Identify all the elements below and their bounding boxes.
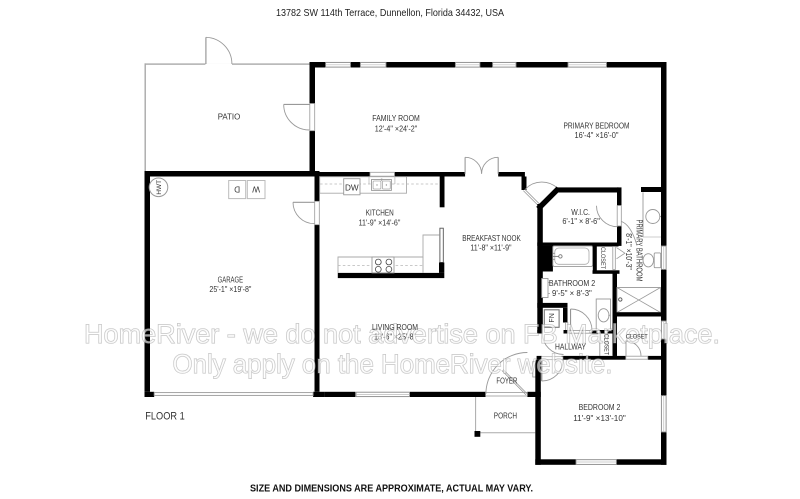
svg-text:25'-1" ×19'-8": 25'-1" ×19'-8": [209, 284, 251, 294]
svg-text:BATHROOM 2: BATHROOM 2: [549, 278, 595, 288]
svg-text:BEDROOM 2: BEDROOM 2: [579, 402, 621, 412]
svg-text:Only apply on the HomeRiver we: Only apply on the HomeRiver website.: [173, 349, 613, 379]
svg-text:PORCH: PORCH: [494, 410, 517, 420]
svg-text:11'-8" ×11'-9": 11'-8" ×11'-9": [470, 242, 511, 252]
svg-text:CLOSET: CLOSET: [603, 334, 610, 355]
svg-text:CLOSET: CLOSET: [599, 247, 606, 269]
svg-text:W.I.C.: W.I.C.: [571, 207, 590, 217]
svg-text:FLOOR 1: FLOOR 1: [145, 411, 184, 423]
svg-text:LIVING ROOM: LIVING ROOM: [372, 322, 418, 332]
svg-text:12'-4" ×24'-2": 12'-4" ×24'-2": [375, 124, 418, 134]
svg-text:FAMILY ROOM: FAMILY ROOM: [372, 113, 420, 123]
svg-text:HWT: HWT: [156, 180, 163, 195]
svg-text:13782 SW 114th Terrace, Dunnel: 13782 SW 114th Terrace, Dunnellon, Flori…: [276, 7, 504, 19]
svg-text:9'-5" × 8'-3": 9'-5" × 8'-3": [552, 288, 592, 298]
svg-text:W: W: [252, 185, 260, 194]
svg-text:CLOSET: CLOSET: [626, 334, 648, 341]
svg-text:16'-4" ×16'-0": 16'-4" ×16'-0": [575, 130, 619, 140]
svg-text:11'-9" ×13'-10": 11'-9" ×13'-10": [573, 413, 626, 423]
svg-text:6'-1" × 8'-6": 6'-1" × 8'-6": [562, 217, 600, 226]
svg-text:KITCHEN: KITCHEN: [366, 207, 394, 217]
svg-text:PATIO: PATIO: [218, 112, 241, 122]
svg-text:DW: DW: [345, 183, 359, 192]
svg-text:11'-9" ×14'-6": 11'-9" ×14'-6": [359, 217, 401, 227]
svg-text:D: D: [234, 185, 240, 194]
svg-text:8'-1" ×10'-3": 8'-1" ×10'-3": [624, 233, 633, 270]
svg-text:SIZE AND DIMENSIONS ARE APPROX: SIZE AND DIMENSIONS ARE APPROXIMATE, ACT…: [250, 483, 533, 495]
svg-text:PRIMARY BATHROOM: PRIMARY BATHROOM: [635, 220, 645, 282]
